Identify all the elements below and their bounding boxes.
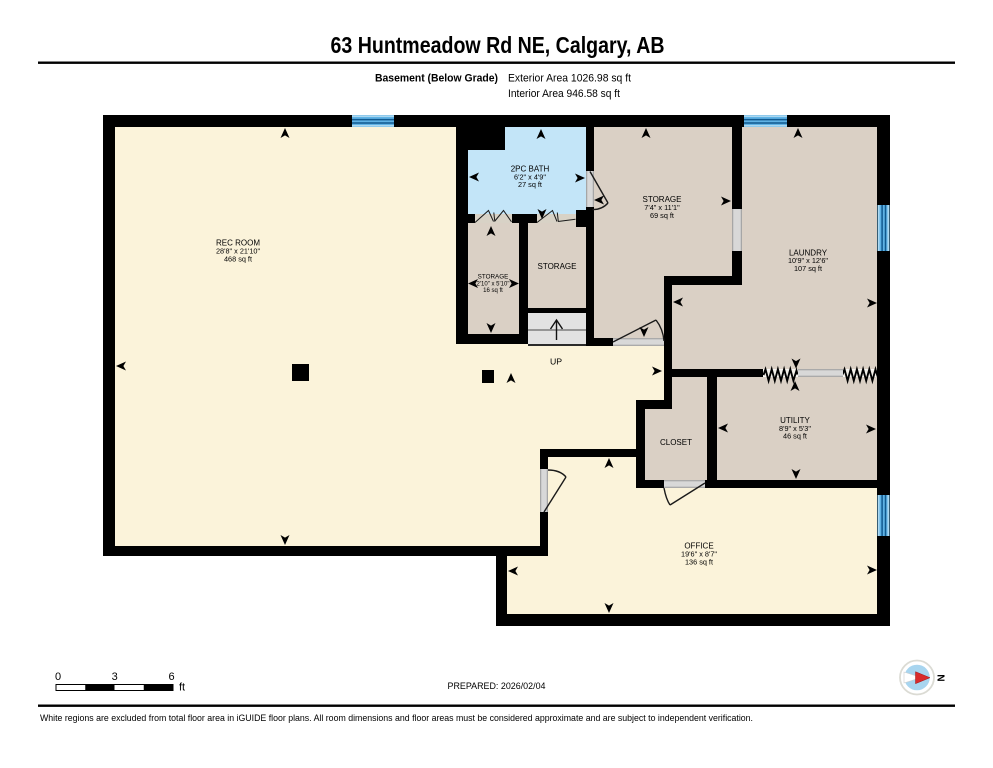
svg-text:PREPARED: 2026/02/04: PREPARED: 2026/02/04 xyxy=(448,681,546,692)
svg-text:UP: UP xyxy=(550,357,562,367)
svg-text:107 sq ft: 107 sq ft xyxy=(794,264,822,273)
svg-text:Interior Area 946.58 sq ft: Interior Area 946.58 sq ft xyxy=(508,88,620,100)
svg-text:Exterior Area 1026.98 sq ft: Exterior Area 1026.98 sq ft xyxy=(508,73,631,85)
svg-text:STORAGE: STORAGE xyxy=(478,274,509,281)
svg-text:N: N xyxy=(935,674,946,681)
svg-text:69 sq ft: 69 sq ft xyxy=(650,211,674,220)
svg-text:Basement (Below Grade): Basement (Below Grade) xyxy=(375,73,498,85)
svg-text:White regions are excluded fro: White regions are excluded from total fl… xyxy=(40,713,753,723)
svg-text:3: 3 xyxy=(112,671,118,683)
svg-text:27 sq ft: 27 sq ft xyxy=(518,180,542,189)
svg-text:16 sq ft: 16 sq ft xyxy=(483,288,503,294)
svg-text:2'10" x 5'10": 2'10" x 5'10" xyxy=(477,282,510,288)
svg-text:ft: ft xyxy=(179,682,185,694)
svg-text:STORAGE: STORAGE xyxy=(538,262,577,271)
svg-text:0: 0 xyxy=(55,671,61,683)
svg-text:6: 6 xyxy=(168,671,174,683)
svg-text:136 sq ft: 136 sq ft xyxy=(685,558,713,567)
svg-text:63 Huntmeadow Rd NE, Calgary,: 63 Huntmeadow Rd NE, Calgary, AB xyxy=(331,32,665,58)
svg-text:CLOSET: CLOSET xyxy=(660,438,692,447)
svg-text:46 sq ft: 46 sq ft xyxy=(783,432,807,441)
svg-text:468 sq ft: 468 sq ft xyxy=(224,254,252,263)
